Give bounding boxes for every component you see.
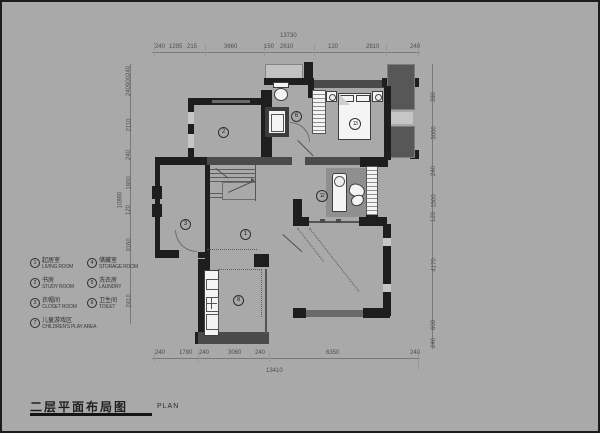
toilet-bowl	[274, 88, 288, 101]
legend-number: 2	[30, 278, 40, 288]
legend-en: TOILET	[99, 304, 117, 310]
dim-label: 120	[126, 205, 132, 215]
wall-tick	[320, 219, 325, 223]
dim-label: 240	[410, 44, 420, 50]
blanket-fold	[339, 94, 350, 105]
window-band	[212, 100, 250, 103]
wall-line	[265, 269, 267, 334]
dim-label: 240	[126, 86, 132, 96]
door-leaf	[282, 234, 302, 252]
terrace-block	[387, 126, 415, 158]
sheet-title-en: PLAN	[157, 403, 179, 410]
window-slot	[188, 112, 194, 124]
wall-segment	[188, 98, 194, 164]
legend-item: 6 卫生间TOILET	[87, 298, 117, 310]
wall-segment	[305, 157, 362, 165]
dim-label: 390	[431, 92, 437, 102]
legend-item: 5 洗衣房LAUNDRY	[87, 278, 121, 290]
wall-pier	[152, 204, 162, 217]
door-arc	[175, 230, 197, 252]
door-leaf	[297, 140, 313, 156]
legend-number: 1	[30, 258, 40, 268]
appliance-box	[206, 314, 219, 330]
wall-segment	[155, 157, 207, 165]
wall-segment	[207, 157, 292, 165]
floor-plan-sheet: 2 6 13 12 1 3 8 13730 240 1295 215 3660 …	[0, 0, 600, 433]
legend-number: 3	[30, 298, 40, 308]
dashed-opening	[218, 269, 260, 270]
legend-item: 3 衣帽间CLOSET ROOM	[30, 298, 77, 310]
basin-inner	[271, 114, 284, 132]
room-label-bed2: 12	[316, 190, 328, 202]
dim-label: 120	[328, 44, 338, 50]
room-label-hall: 1	[240, 229, 251, 240]
legend-item: 2 书房STUDY ROOM	[30, 278, 74, 290]
pillow	[356, 95, 370, 102]
dim-label: 150	[264, 44, 274, 50]
dim-ext	[386, 44, 387, 56]
legend-item: 7 儿童游戏区CHILDREN'S PLAY AREA	[30, 318, 96, 330]
legend-en: STORAGE ROOM	[99, 264, 138, 270]
dim-ext	[205, 44, 206, 56]
window-band	[306, 310, 363, 317]
dim-label: 1295	[169, 44, 182, 50]
wall-line	[309, 221, 361, 223]
dim-label: 240	[155, 44, 165, 50]
legend-en: LAUNDRY	[99, 284, 121, 290]
lamp-icon	[329, 94, 336, 101]
dim-total-top: 13730	[280, 33, 297, 39]
dim-label: 3660	[224, 44, 237, 50]
dim-label: 600	[431, 320, 437, 330]
wall-segment	[155, 250, 179, 258]
dim-label: 240	[155, 350, 165, 356]
dim-label: 120	[431, 212, 437, 222]
pillow-round	[334, 176, 345, 187]
dashed-opening	[261, 269, 262, 317]
appliance-box	[206, 297, 219, 312]
room-label-bath: 6	[291, 111, 302, 122]
wall-segment	[293, 308, 306, 318]
window-slot	[383, 284, 391, 292]
dim-ext	[314, 44, 315, 56]
lamp-icon	[375, 94, 382, 101]
dashed-ceiling-line	[309, 228, 359, 292]
cabinet-box	[206, 279, 219, 290]
dim-label: 240	[431, 166, 437, 176]
wall-segment	[363, 308, 390, 318]
dim-label: 240	[431, 338, 437, 348]
dim-label: 215	[187, 44, 197, 50]
wall-pier	[152, 186, 162, 199]
dim-label: 6350	[326, 350, 339, 356]
room-label-closet: 3	[180, 219, 191, 230]
dim-label: 240	[126, 150, 132, 160]
dim-label: 3000	[432, 126, 438, 139]
legend-number: 5	[87, 278, 97, 288]
dim-chain-bottom	[152, 358, 420, 359]
room-label-study: 2	[218, 127, 229, 138]
dim-total-bottom: 13410	[266, 368, 283, 374]
wall-pier	[254, 254, 269, 267]
door-arc	[290, 122, 310, 142]
dim-label: 240	[199, 350, 209, 356]
dashed-ceiling-line	[297, 228, 324, 262]
legend-en: STUDY ROOM	[42, 284, 74, 290]
stair-edge	[255, 165, 256, 201]
dim-label: 2810	[366, 44, 379, 50]
dim-label: 3060	[228, 350, 241, 356]
dim-label: 4170	[432, 258, 438, 271]
legend-number: 6	[87, 298, 97, 308]
window-strip	[366, 166, 378, 216]
legend-number: 7	[30, 318, 40, 328]
dim-label: 240	[126, 66, 132, 76]
dim-label: 240	[410, 350, 420, 356]
ledge	[265, 64, 303, 79]
window-slot	[188, 134, 194, 148]
dim-chain-left	[130, 64, 131, 324]
room-label-bed1: 13	[349, 118, 361, 130]
wall-tick	[336, 219, 341, 223]
window-slot	[383, 238, 391, 246]
legend-number: 4	[87, 258, 97, 268]
wall-segment	[384, 86, 391, 160]
dim-label: 1800	[127, 176, 133, 189]
dim-label: 2410	[127, 294, 133, 307]
room-label-playroom: 8	[233, 295, 244, 306]
dim-chain-top	[152, 52, 420, 53]
dim-label: 2610	[280, 44, 293, 50]
dim-label: 1500	[432, 194, 438, 207]
wardrobe	[312, 90, 326, 134]
legend-item: 1 起居室LIVING ROOM	[30, 258, 73, 270]
dim-label: 900	[126, 76, 132, 86]
stair-arrow-head	[251, 178, 255, 182]
window-slot	[389, 112, 413, 124]
dim-label: 3160	[127, 238, 133, 251]
dim-label: 1790	[179, 350, 192, 356]
title-underline	[30, 413, 152, 416]
stair-treads	[210, 190, 223, 201]
dashed-beam	[207, 249, 257, 250]
legend-en: LIVING ROOM	[42, 264, 73, 270]
wall-segment	[293, 217, 309, 226]
dim-label: 2110	[126, 119, 132, 132]
dim-total-left: 10860	[117, 192, 123, 209]
appliance-line	[211, 298, 212, 309]
dim-ext	[269, 352, 270, 362]
terrace-block	[387, 64, 415, 110]
dim-label: 240	[255, 350, 265, 356]
legend-en: CHILDREN'S PLAY AREA	[42, 324, 96, 330]
legend-item: 4 储藏室STORAGE ROOM	[87, 258, 138, 270]
legend-en: CLOSET ROOM	[42, 304, 77, 310]
